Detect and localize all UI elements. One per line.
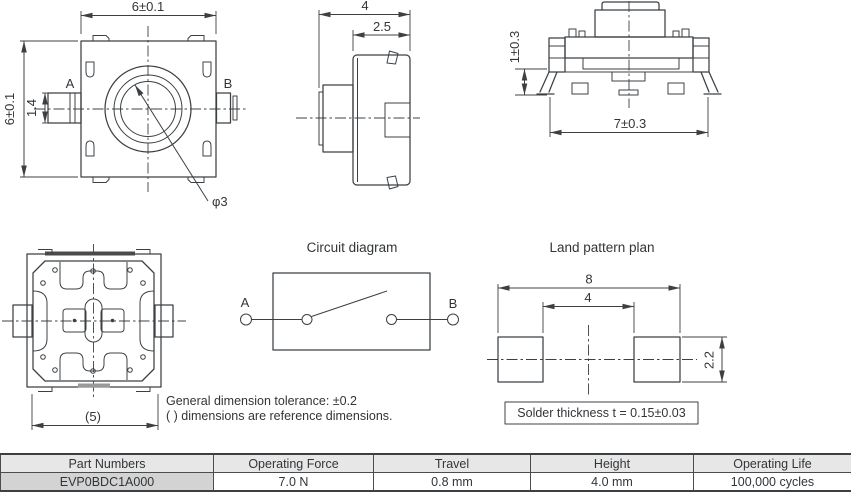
bottom-tab bbox=[619, 90, 638, 95]
spec-table-header-row: Part Numbers Operating Force Travel Heig… bbox=[1, 454, 851, 473]
leg-right bbox=[701, 72, 721, 94]
dim-depth-label: 4 bbox=[361, 0, 368, 13]
dim-pad-label: 2.2 bbox=[702, 351, 717, 369]
inner-notch bbox=[203, 141, 211, 156]
circuit-label-a: A bbox=[241, 295, 250, 310]
dim-inner-label: 4 bbox=[584, 290, 591, 305]
body-tab bbox=[579, 31, 585, 37]
bottom-view: (5) bbox=[2, 244, 186, 430]
body-tab bbox=[673, 31, 679, 37]
inner-notch bbox=[203, 62, 211, 77]
col-header-operating-life: Operating Life bbox=[694, 454, 851, 473]
terminal-b-label: B bbox=[224, 76, 233, 91]
dim-span-label: 7±0.3 bbox=[614, 116, 646, 131]
top-hook bbox=[387, 51, 398, 64]
front-body-mid bbox=[583, 58, 679, 69]
side-button bbox=[323, 85, 353, 152]
clip-left bbox=[549, 38, 565, 72]
body-tab bbox=[682, 29, 689, 37]
front-view: 1±0.3 7±0.3 bbox=[507, 1, 721, 137]
dim-width-label: 6±0.1 bbox=[132, 0, 164, 14]
inner-notch bbox=[86, 62, 94, 77]
spec-table-data-row: EVP0BDC1A000 7.0 N 0.8 mm 4.0 mm 100,000… bbox=[1, 473, 851, 492]
side-view: 4 2.5 bbox=[296, 0, 420, 189]
side-body-outline bbox=[353, 55, 410, 185]
terminal-b-node bbox=[448, 314, 459, 325]
spec-table-grid: Part Numbers Operating Force Travel Heig… bbox=[0, 453, 851, 492]
knob bbox=[595, 10, 665, 37]
center-tab bbox=[612, 72, 645, 81]
circuit-label-b: B bbox=[449, 296, 458, 311]
dim-outer-label: 8 bbox=[585, 272, 592, 287]
terminal-a-node bbox=[241, 314, 252, 325]
terminal-a-label: A bbox=[66, 76, 75, 91]
contact-node-left bbox=[302, 315, 312, 325]
clip-right bbox=[693, 38, 709, 72]
col-header-part-numbers: Part Numbers bbox=[1, 454, 214, 473]
foot-block-right bbox=[668, 83, 684, 94]
dim-height-label: 6±0.1 bbox=[2, 93, 17, 125]
col-header-operating-force: Operating Force bbox=[214, 454, 374, 473]
note-tolerance: General dimension tolerance: ±0.2 bbox=[166, 394, 357, 408]
terminal-b bbox=[217, 93, 231, 123]
dim-terminal-label: 1.4 bbox=[24, 99, 39, 117]
land-pattern-plan: Land pattern plan 8 4 2.2 Solder thickne… bbox=[487, 240, 727, 424]
cell-part-number: EVP0BDC1A000 bbox=[1, 473, 214, 492]
land-pattern-title: Land pattern plan bbox=[549, 240, 654, 255]
dim-leg-label: 1±0.3 bbox=[507, 31, 522, 63]
circuit-diagram: Circuit diagram A B bbox=[241, 240, 459, 350]
dim-ref-label: (5) bbox=[85, 409, 101, 424]
note-reference: ( ) dimensions are reference dimensions. bbox=[166, 409, 393, 423]
notes: General dimension tolerance: ±0.2 ( ) di… bbox=[166, 394, 393, 423]
foot-block-left bbox=[572, 83, 588, 94]
side-recess bbox=[385, 103, 410, 137]
bottom-hook bbox=[387, 176, 398, 189]
rivets bbox=[41, 268, 146, 374]
solder-note-text: Solder thickness t = 0.15±0.03 bbox=[517, 406, 685, 420]
corner-tab bbox=[93, 36, 109, 42]
spec-table: Part Numbers Operating Force Travel Heig… bbox=[0, 453, 851, 492]
top-strip bbox=[45, 252, 135, 256]
cell-operating-force: 7.0 N bbox=[214, 473, 374, 492]
button-dia-label: φ3 bbox=[212, 194, 228, 209]
knob-top bbox=[602, 2, 659, 10]
leg-left bbox=[537, 72, 557, 94]
terminal-a bbox=[48, 93, 81, 123]
col-header-height: Height bbox=[531, 454, 694, 473]
bottom-strip bbox=[78, 384, 110, 388]
cell-travel: 0.8 mm bbox=[374, 473, 531, 492]
cell-operating-life: 100,000 cycles bbox=[694, 473, 851, 492]
inner-notch bbox=[86, 141, 94, 156]
contact-dot bbox=[111, 319, 115, 323]
circuit-title: Circuit diagram bbox=[307, 240, 398, 255]
contact-node-right bbox=[387, 315, 397, 325]
terminal-b-tip bbox=[233, 96, 237, 120]
col-header-travel: Travel bbox=[374, 454, 531, 473]
corner-tab bbox=[93, 177, 109, 183]
datasheet-page: 6±0.1 6±0.1 1.4 A B φ3 4 2.5 bbox=[0, 0, 851, 493]
switch-arm bbox=[312, 291, 388, 317]
technical-drawing: 6±0.1 6±0.1 1.4 A B φ3 4 2.5 bbox=[0, 0, 851, 452]
circuit-box bbox=[273, 273, 430, 350]
top-view: 6±0.1 6±0.1 1.4 A B φ3 bbox=[2, 0, 246, 209]
dim-body-depth-label: 2.5 bbox=[373, 19, 391, 34]
corner-tab bbox=[188, 36, 204, 42]
contact-dot bbox=[73, 319, 77, 323]
cell-height: 4.0 mm bbox=[531, 473, 694, 492]
body-tab bbox=[569, 29, 576, 37]
